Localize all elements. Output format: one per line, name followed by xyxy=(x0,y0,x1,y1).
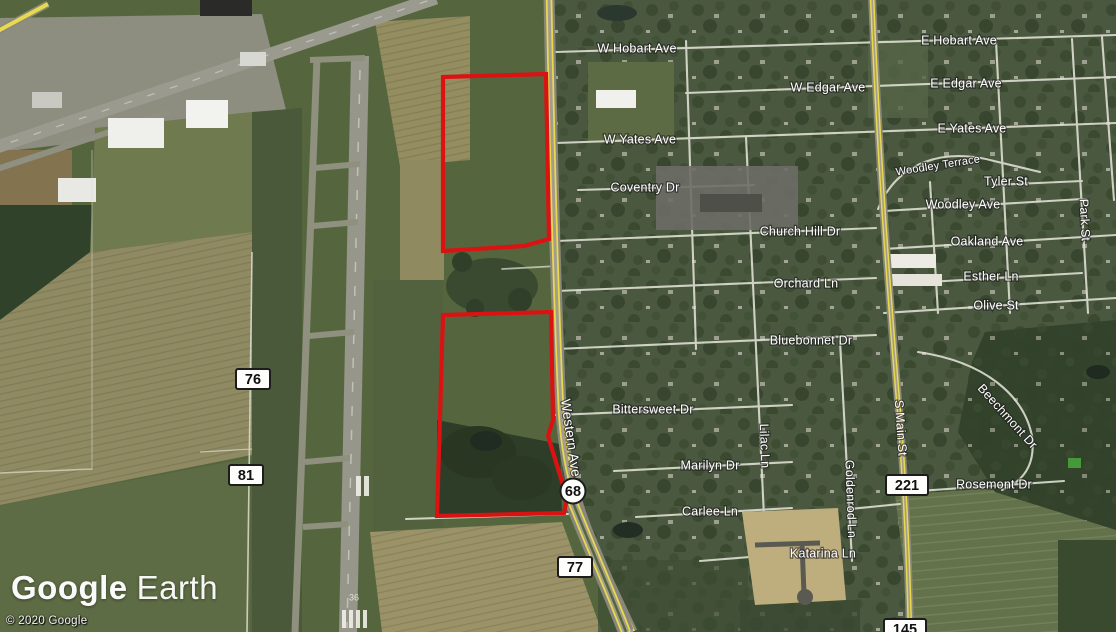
street-label-e-yates-ave: E Yates Ave xyxy=(938,121,1007,135)
street-label-e-hobart-ave: E Hobart Ave xyxy=(921,33,997,47)
pond xyxy=(613,522,643,538)
pond xyxy=(1086,365,1110,379)
pond xyxy=(470,431,502,451)
route-shield-221: 221 xyxy=(886,475,928,495)
route-shield-68: 68 xyxy=(561,479,586,504)
route-shield-77: 77 xyxy=(558,557,592,577)
satellite-map-canvas[interactable]: 36 xyxy=(0,0,1116,632)
street-label-w-yates-ave: W Yates Ave xyxy=(604,132,676,146)
street-label-carlee-ln: Carlee Ln xyxy=(682,504,738,518)
street-label-coventry-dr: Coventry Dr xyxy=(611,180,680,194)
route-shield-81: 81 xyxy=(229,465,263,485)
street-label-park-st: Park St xyxy=(1077,198,1093,241)
route-shield-76: 76 xyxy=(236,369,270,389)
street-label-woodley-ave: Woodley Ave xyxy=(926,197,1001,211)
dark-hangar xyxy=(200,0,252,16)
logo-google: Google xyxy=(11,569,128,606)
street-label-bluebonnet-dr: Bluebonnet Dr xyxy=(770,333,853,347)
svg-text:81: 81 xyxy=(238,468,254,484)
street-label-w-hobart-ave: W Hobart Ave xyxy=(597,41,676,55)
street-label-church-hill-dr: Church Hill Dr xyxy=(760,224,841,238)
svg-text:76: 76 xyxy=(245,372,261,388)
street-label-esther-ln: Esther Ln xyxy=(963,269,1018,283)
street-label-goldenrod-ln: Goldenrod Ln xyxy=(842,460,859,539)
street-label-w-edgar-ave: W Edgar Ave xyxy=(791,80,866,94)
logo-earth: Earth xyxy=(137,569,218,606)
street-label-lilac-ln: Lilac Ln xyxy=(757,423,773,468)
route-shield-145: 145 xyxy=(884,619,926,632)
street-label-olive-st: Olive St xyxy=(973,298,1019,312)
street-label-orchard-ln: Orchard Ln xyxy=(774,276,839,290)
street-label-e-edgar-ave: E Edgar Ave xyxy=(930,76,1001,90)
svg-text:221: 221 xyxy=(895,478,919,494)
google-earth-logo: GoogleEarth xyxy=(11,569,218,607)
google-earth-viewport[interactable]: 36 xyxy=(0,0,1116,632)
pond xyxy=(597,5,637,21)
street-label-bittersweet-dr: Bittersweet Dr xyxy=(612,402,693,416)
street-label-rosemont-dr: Rosemont Dr xyxy=(956,477,1032,491)
svg-text:145: 145 xyxy=(893,622,917,632)
runway-number: 36 xyxy=(349,592,359,602)
street-label-katarina-ln: Katarina Ln xyxy=(790,546,856,560)
svg-text:68: 68 xyxy=(565,484,581,500)
street-label-marilyn-dr: Marilyn Dr xyxy=(681,458,740,472)
svg-text:77: 77 xyxy=(567,560,583,576)
copyright-notice: © 2020 Google xyxy=(6,615,87,627)
street-label-tyler-st: Tyler St xyxy=(984,174,1028,188)
street-label-oakland-ave: Oakland Ave xyxy=(951,234,1024,248)
